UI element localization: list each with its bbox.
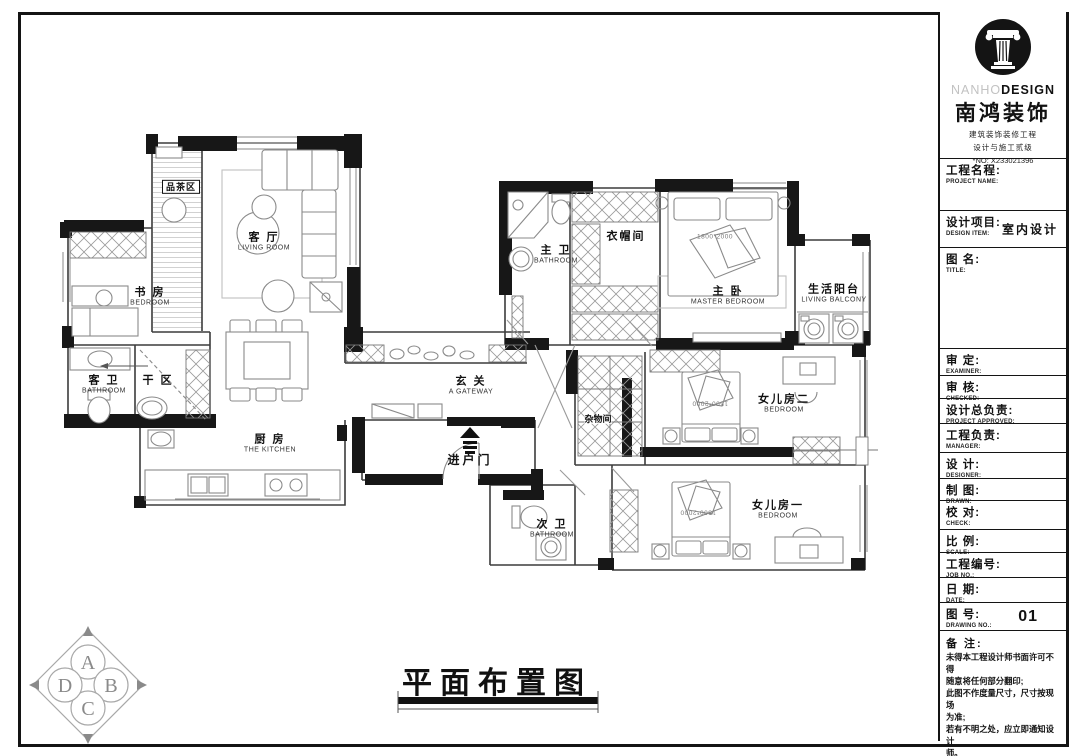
note-line: 未得本工程设计师书面许可不得 [946, 651, 1060, 675]
compass-rosette: A B C D [29, 626, 147, 744]
room-label-living-balcony: 生活阳台LIVING BALCONY [801, 284, 866, 305]
room-label-living-room: 客 厅LIVING ROOM [238, 232, 290, 253]
notes-section: 备 注: 未得本工程设计师书面许可不得 随意将任何部分翻印; 此图不作度量尺寸，… [940, 630, 1066, 756]
drawing-no-value: 01 [1018, 608, 1038, 626]
bed-size-daughter2: 1500*2000 [692, 400, 728, 407]
note-line: 师。 [946, 747, 1060, 756]
room-label-closet: 衣帽间 [607, 231, 646, 244]
room-label-guest-bath: 客 卫BATHROOM [82, 375, 126, 396]
room-label-daughter-room-1: 女儿房一BEDROOM [752, 500, 804, 521]
plan-title: 平面布置图 [402, 658, 592, 702]
note-line: 若有不明之处，应立即通知设计 [946, 723, 1060, 747]
room-label-master-bedroom: 主 卧MASTER BEDROOM [691, 286, 765, 307]
brand-light-text: NANHO [951, 83, 1001, 97]
room-label-tea-area: 品茶区 [162, 180, 200, 194]
field-date: 日 期:DATE: [940, 577, 1066, 602]
field-drawn: 制 图:DRAWN: [940, 478, 1066, 500]
drawing-sheet: A B C D 品茶区 客 厅LIVING ROOM 书 房BEDROOM 客 … [0, 0, 1080, 756]
company-sub2: 设计与施工贰级 [940, 142, 1066, 153]
room-label-storage: 杂物间 [584, 414, 611, 424]
brand-bold-text: DESIGN [1001, 83, 1055, 97]
room-label-kitchen: 厨 房THE KITCHEN [244, 434, 296, 455]
column-logo-icon [974, 18, 1032, 76]
room-label-second-bath: 次 卫BATHROOM [530, 519, 574, 540]
room-label-daughter-room-2: 女儿房二BEDROOM [758, 394, 810, 415]
field-project-approved: 设计总负责:PROJECT APPROVED: [940, 398, 1066, 423]
field-project-name: 工程名程:PROJECT NAME: [940, 158, 1066, 210]
compass-letter-a: A [81, 652, 96, 674]
company-sub1: 建筑装饰装修工程 [940, 129, 1066, 140]
compass-letter-c: C [81, 698, 94, 720]
field-checked: 审 核:CHECKED: [940, 375, 1066, 398]
entry-arrow-icon [460, 427, 480, 454]
room-label-master-bath: 主 卫BATHROOM [534, 245, 578, 266]
field-scale: 比 例:SCALE: [940, 529, 1066, 552]
field-title: 图 名:TITLE: [940, 247, 1066, 348]
bed-size-daughter1: 1500*2000 [680, 509, 716, 516]
field-job-no: 工程编号:JOB NO.: [940, 552, 1066, 577]
entry-door-label: 进户门 [447, 454, 492, 468]
note-line: 随意将任何部分翻印; [946, 675, 1060, 687]
company-name: 南鸿装饰 [940, 97, 1066, 127]
compass-letter-b: B [104, 675, 117, 697]
room-label-gateway: 玄 关A GATEWAY [449, 376, 493, 397]
notes-title: 备 注: [946, 635, 1060, 651]
field-manager: 工程负责:MANAGER: [940, 423, 1066, 452]
title-block: NANHODESIGN 南鸿装饰 建筑装饰装修工程 设计与施工贰级 *NO: X… [938, 12, 1066, 741]
field-designer: 设 计:DESIGNER: [940, 452, 1066, 478]
design-item-value: 室内设计 [1002, 221, 1058, 238]
note-line: 为准; [946, 711, 1060, 723]
compass-letter-d: D [58, 675, 72, 697]
field-examiner: 审 定:EXAMINER: [940, 348, 1066, 375]
field-design-item: 设计项目:DESIGN ITEM:室内设计 [940, 210, 1066, 247]
room-label-study: 书 房BEDROOM [130, 287, 170, 308]
logo-cell: NANHODESIGN 南鸿装饰 建筑装饰装修工程 设计与施工贰级 *NO: X… [940, 12, 1066, 158]
note-line: 此图不作度量尺寸，尺寸按现场 [946, 687, 1060, 711]
room-label-dry-area: 干 区 [142, 375, 173, 388]
field-drawing-no: 图 号:DRAWING NO.:01 [940, 602, 1066, 630]
bed-size-master: 1800*2000 [697, 234, 733, 241]
brand-line: NANHODESIGN [940, 83, 1066, 97]
field-check: 校 对:CHECK: [940, 500, 1066, 529]
